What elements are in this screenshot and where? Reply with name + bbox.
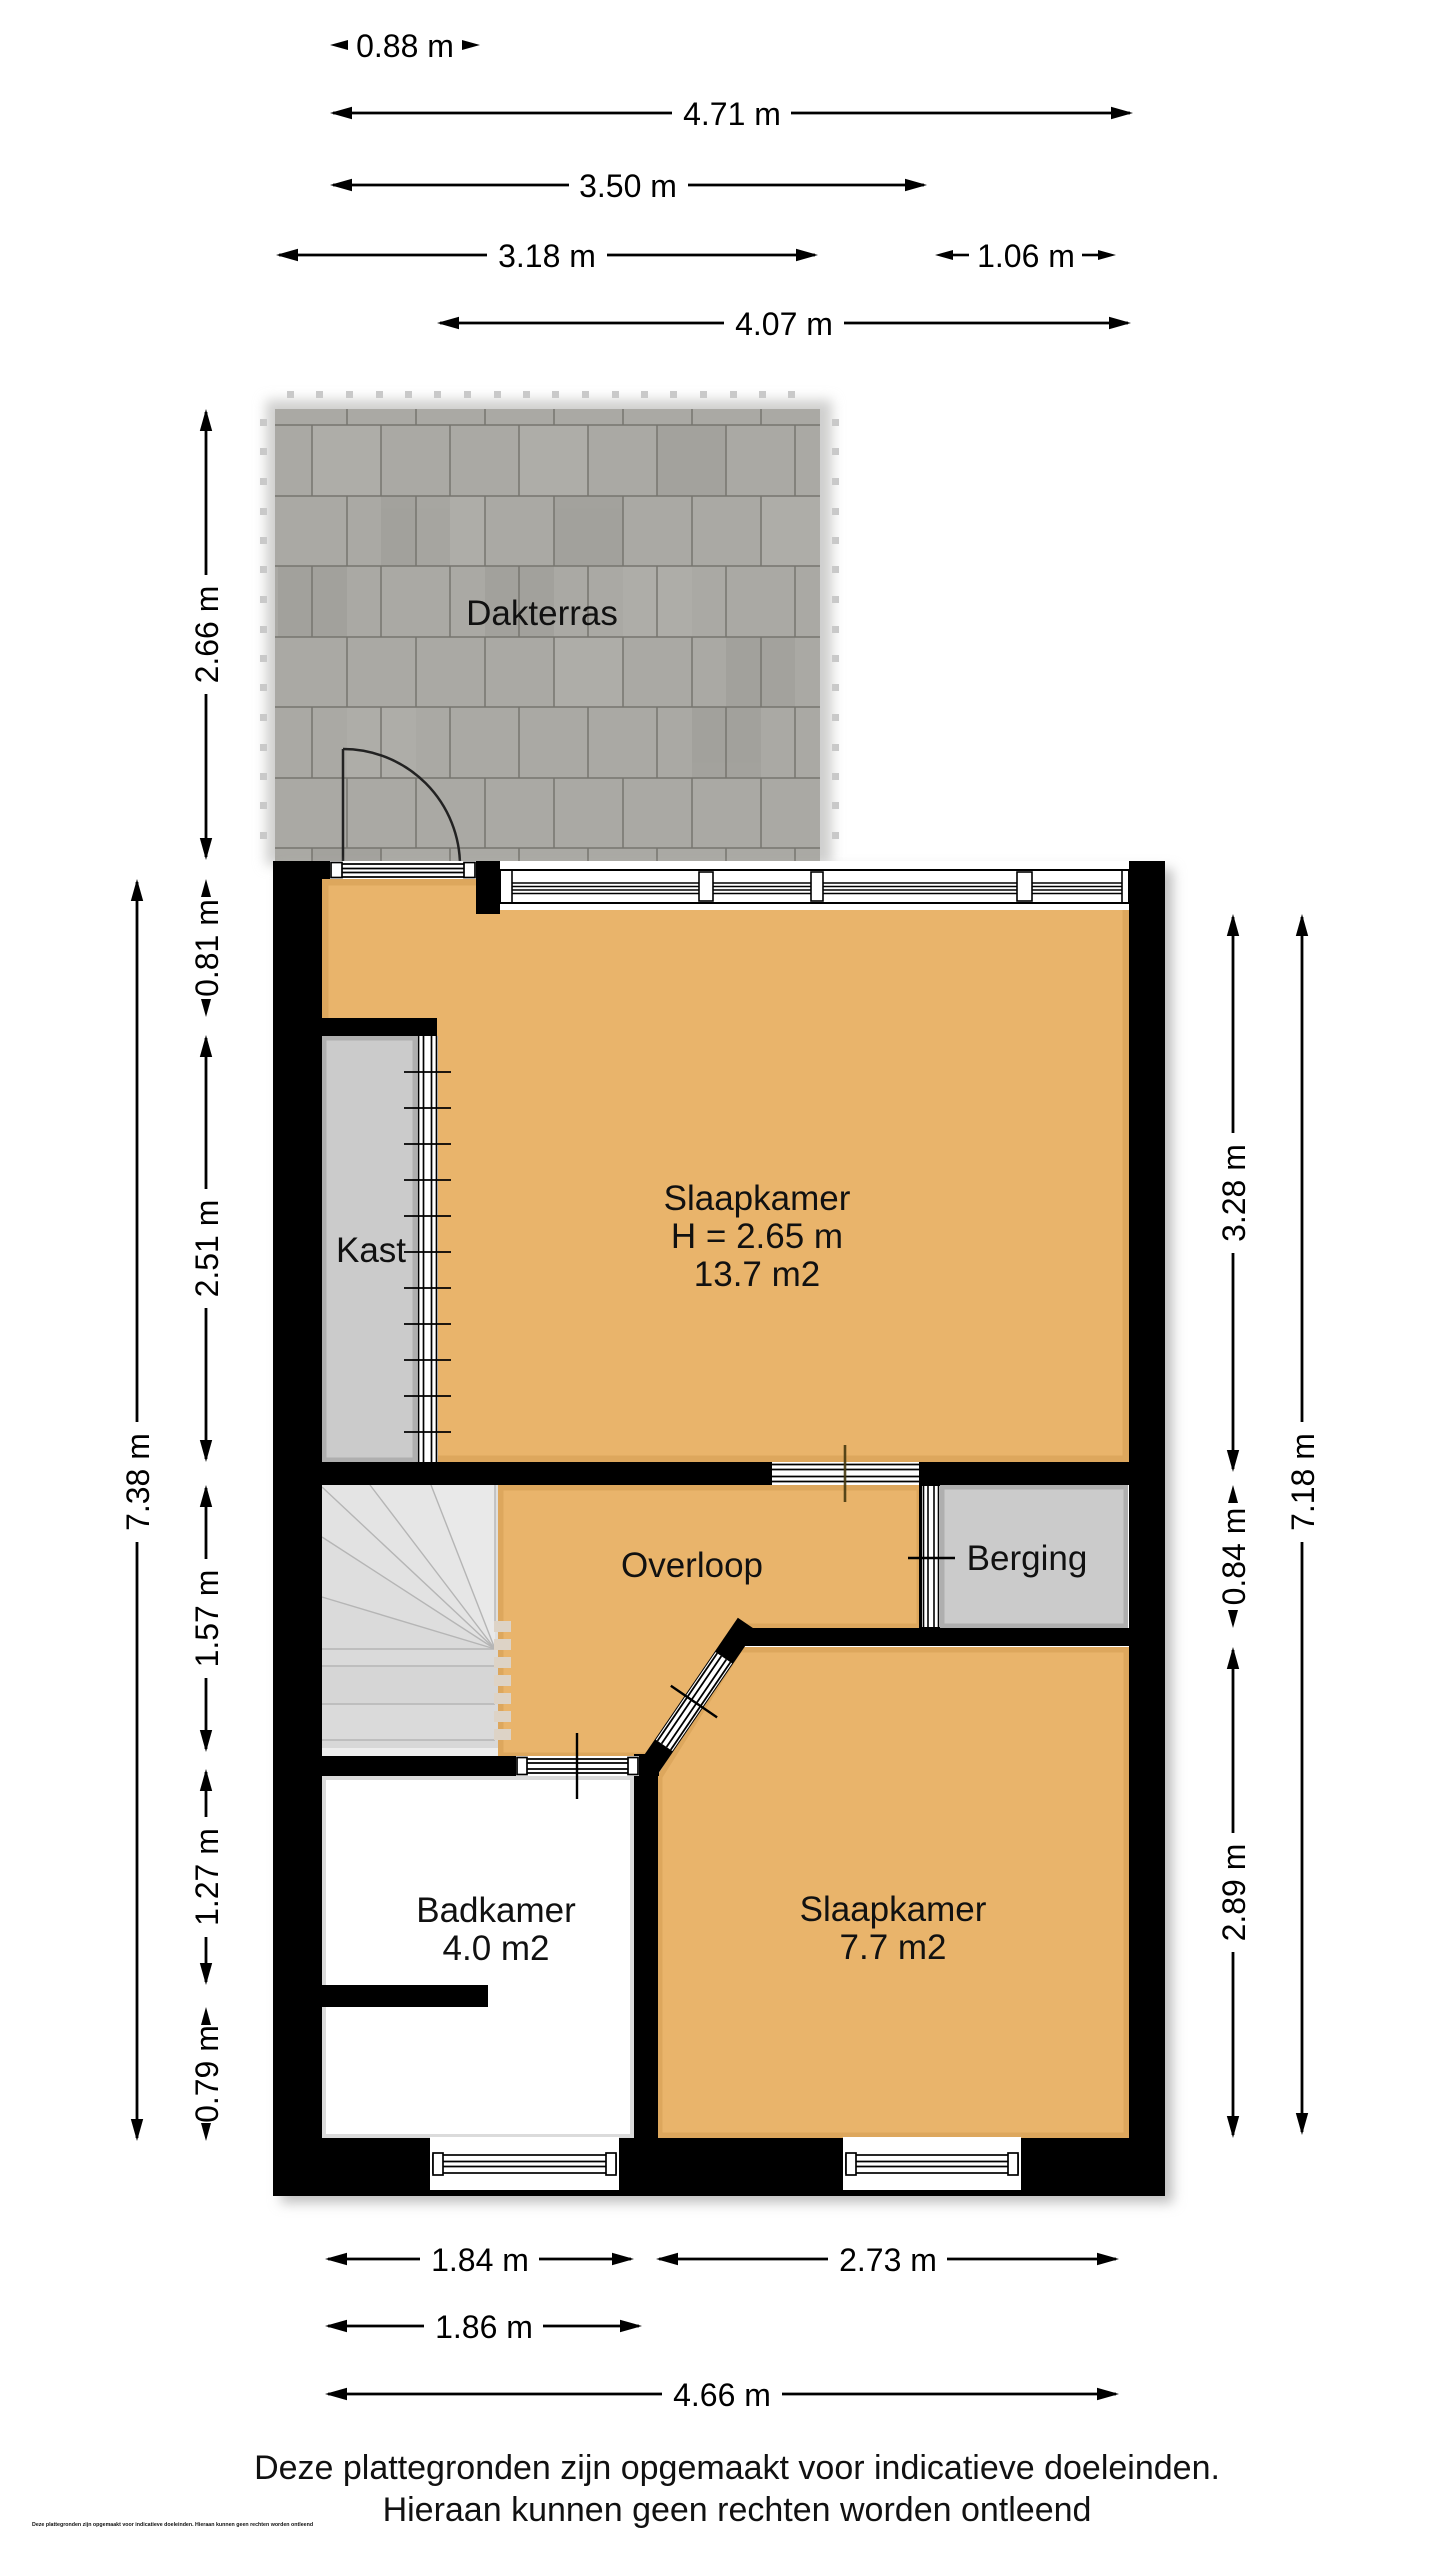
svg-text:7.38 m: 7.38 m	[120, 1433, 156, 1531]
svg-text:4.0 m2: 4.0 m2	[443, 1929, 550, 1968]
svg-text:Dakterras: Dakterras	[466, 594, 618, 633]
svg-text:Hieraan kunnen geen rechten wo: Hieraan kunnen geen rechten worden ontle…	[383, 2491, 1092, 2529]
svg-text:2.51 m: 2.51 m	[189, 1200, 225, 1298]
svg-text:H = 2.65 m: H = 2.65 m	[671, 1217, 843, 1256]
svg-text:Badkamer: Badkamer	[416, 1891, 576, 1930]
svg-text:13.7 m2: 13.7 m2	[694, 1255, 820, 1294]
svg-text:2.89 m: 2.89 m	[1216, 1844, 1252, 1942]
svg-text:1.06 m: 1.06 m	[977, 238, 1075, 274]
svg-text:1.27 m: 1.27 m	[189, 1828, 225, 1926]
svg-text:Deze plattegronden zijn opgema: Deze plattegronden zijn opgemaakt voor i…	[254, 2449, 1220, 2487]
svg-text:Overloop: Overloop	[621, 1546, 763, 1585]
svg-text:4.71 m: 4.71 m	[683, 96, 781, 132]
svg-text:Slaapkamer: Slaapkamer	[664, 1179, 851, 1218]
svg-text:3.28 m: 3.28 m	[1216, 1144, 1252, 1242]
svg-text:4.07 m: 4.07 m	[735, 306, 833, 342]
svg-text:7.18 m: 7.18 m	[1285, 1433, 1321, 1531]
svg-text:4.66 m: 4.66 m	[673, 2377, 771, 2413]
svg-text:Deze plattegronden zijn opgema: Deze plattegronden zijn opgemaakt voor i…	[32, 2522, 313, 2528]
svg-text:0.79 m: 0.79 m	[189, 2025, 225, 2123]
svg-text:7.7 m2: 7.7 m2	[840, 1928, 947, 1967]
svg-text:1.57 m: 1.57 m	[189, 1570, 225, 1668]
svg-text:1.86 m: 1.86 m	[435, 2309, 533, 2345]
svg-text:0.88 m: 0.88 m	[356, 28, 454, 64]
svg-text:0.84 m: 0.84 m	[1216, 1508, 1252, 1606]
svg-text:Berging: Berging	[967, 1539, 1088, 1578]
svg-text:Kast: Kast	[336, 1231, 406, 1270]
svg-text:1.84 m: 1.84 m	[431, 2242, 529, 2278]
svg-text:0.81 m: 0.81 m	[189, 899, 225, 997]
svg-text:2.66 m: 2.66 m	[189, 586, 225, 684]
svg-text:2.73 m: 2.73 m	[839, 2242, 937, 2278]
svg-text:3.18 m: 3.18 m	[498, 238, 596, 274]
svg-text:3.50 m: 3.50 m	[579, 168, 677, 204]
svg-text:Slaapkamer: Slaapkamer	[800, 1890, 987, 1929]
